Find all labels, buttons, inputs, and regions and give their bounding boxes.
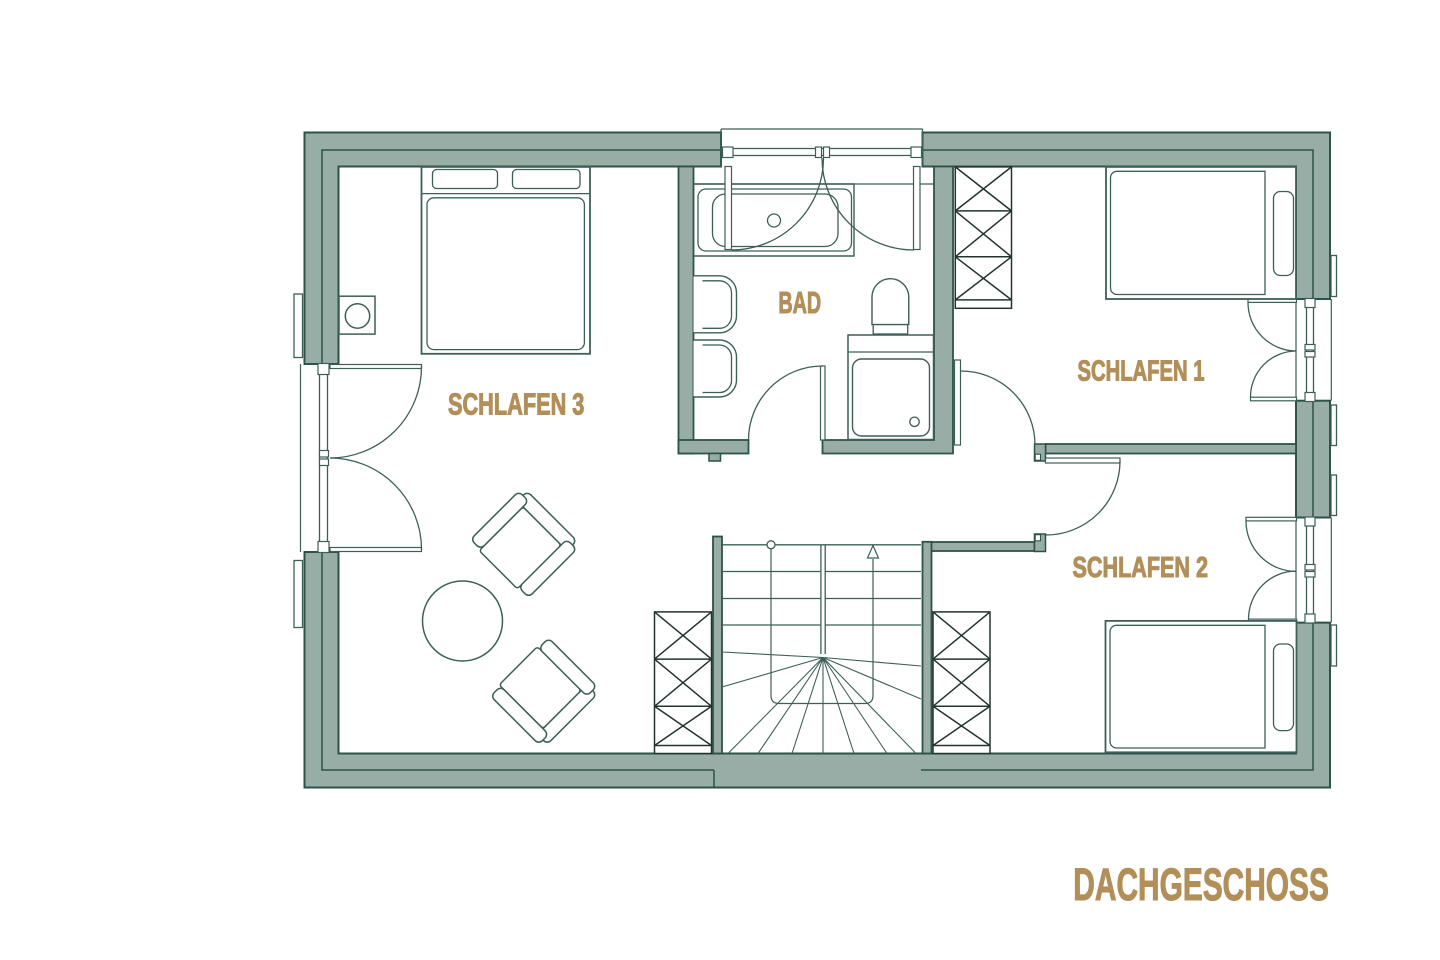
svg-text:SCHLAFEN 1: SCHLAFEN 1 — [1078, 354, 1205, 386]
svg-text:SCHLAFEN 3: SCHLAFEN 3 — [448, 387, 584, 421]
svg-text:DACHGESCHOSS: DACHGESCHOSS — [1073, 859, 1329, 910]
svg-text:SCHLAFEN 2: SCHLAFEN 2 — [1073, 552, 1209, 584]
svg-text:BAD: BAD — [778, 285, 821, 320]
